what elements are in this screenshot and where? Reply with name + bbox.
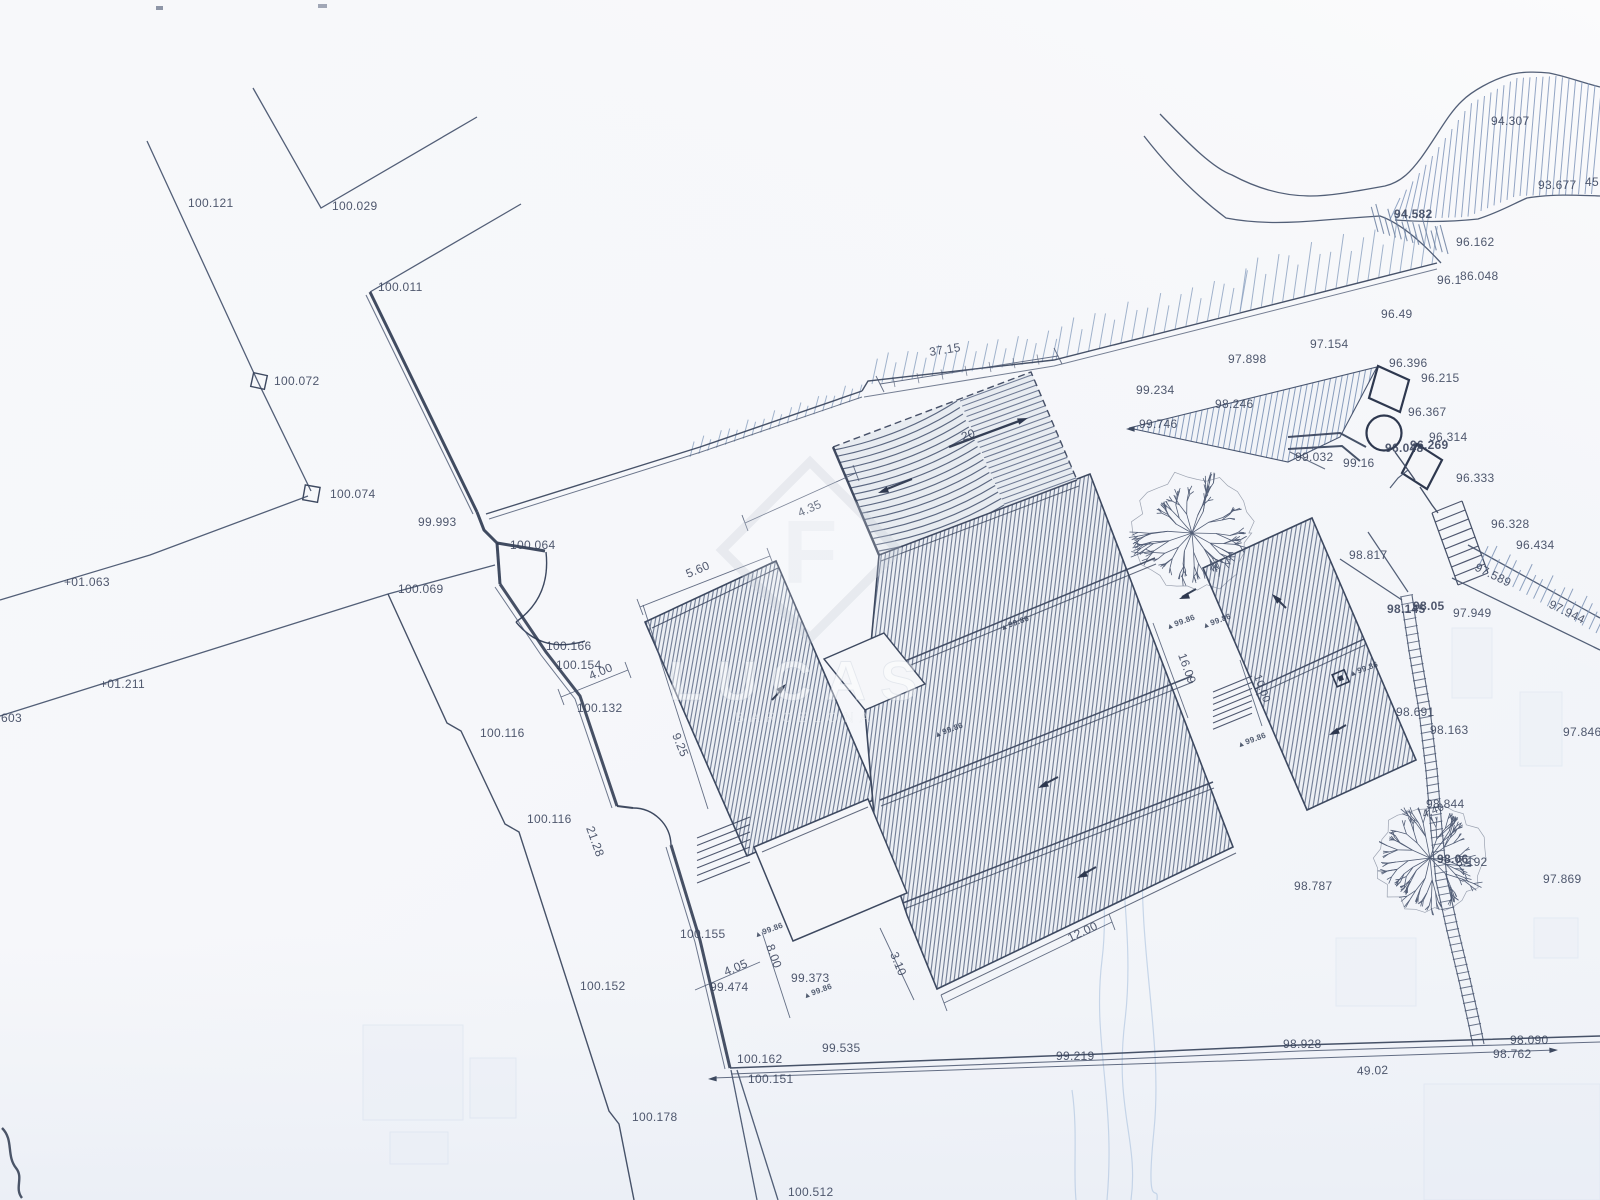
svg-text:96.215: 96.215 <box>1421 371 1460 385</box>
svg-text:97.898: 97.898 <box>1228 352 1267 366</box>
svg-text:100.116: 100.116 <box>527 812 572 826</box>
svg-text:98.762: 98.762 <box>1493 1047 1532 1061</box>
svg-text:98.090: 98.090 <box>1510 1033 1549 1047</box>
svg-text:100.072: 100.072 <box>274 374 320 388</box>
svg-text:98.163: 98.163 <box>1430 723 1469 737</box>
svg-text:100.132: 100.132 <box>577 701 623 715</box>
svg-text:+01.063: +01.063 <box>64 575 110 589</box>
svg-text:98.787: 98.787 <box>1294 879 1333 893</box>
svg-text:97.869: 97.869 <box>1543 872 1582 886</box>
svg-text:100.152: 100.152 <box>580 979 626 993</box>
svg-text:LUCAS: LUCAS <box>669 649 932 712</box>
svg-text:96.269: 96.269 <box>1410 438 1449 452</box>
svg-text:100.064: 100.064 <box>510 538 556 552</box>
svg-text:100.069: 100.069 <box>398 582 444 596</box>
svg-text:86.048: 86.048 <box>1460 269 1499 283</box>
svg-text:100.074: 100.074 <box>330 487 376 501</box>
svg-text:99.474: 99.474 <box>710 980 749 994</box>
svg-text:96.1: 96.1 <box>1437 273 1462 287</box>
svg-text:98.05: 98.05 <box>1413 599 1445 613</box>
svg-text:99.993: 99.993 <box>418 515 457 529</box>
svg-text:99.16: 99.16 <box>1343 456 1375 470</box>
svg-text:F: F <box>783 503 838 603</box>
svg-text:98.246: 98.246 <box>1215 397 1254 411</box>
svg-text:99.373: 99.373 <box>791 971 830 985</box>
svg-text:94.582: 94.582 <box>1394 207 1433 221</box>
svg-text:97.154: 97.154 <box>1310 337 1349 351</box>
svg-text:100.166: 100.166 <box>546 639 592 653</box>
svg-text:8.192: 8.192 <box>1456 855 1488 869</box>
svg-text:100.162: 100.162 <box>737 1052 783 1066</box>
svg-text:99.219: 99.219 <box>1056 1049 1095 1063</box>
svg-text:+01.211: +01.211 <box>100 677 145 691</box>
svg-text:603: 603 <box>1 711 22 725</box>
svg-text:100.512: 100.512 <box>788 1185 834 1199</box>
svg-text:96.367: 96.367 <box>1408 405 1447 419</box>
svg-text:98.691: 98.691 <box>1396 705 1435 719</box>
svg-text:BARCELONA: BARCELONA <box>735 709 875 725</box>
svg-text:96.396: 96.396 <box>1389 356 1428 370</box>
svg-text:100.011: 100.011 <box>378 280 423 294</box>
svg-text:49.02: 49.02 <box>1357 1063 1389 1078</box>
svg-text:96.434: 96.434 <box>1516 538 1555 552</box>
svg-text:45: 45 <box>1585 175 1599 189</box>
svg-text:96.333: 96.333 <box>1456 471 1495 485</box>
svg-text:96.162: 96.162 <box>1456 235 1495 249</box>
svg-text:93.677: 93.677 <box>1538 178 1577 192</box>
svg-text:99.032: 99.032 <box>1295 450 1334 464</box>
svg-text:94.307: 94.307 <box>1491 114 1530 128</box>
svg-text:100.151: 100.151 <box>748 1072 794 1086</box>
svg-text:96.328: 96.328 <box>1491 517 1530 531</box>
svg-text:100.155: 100.155 <box>680 927 726 941</box>
svg-text:99.535: 99.535 <box>822 1041 861 1055</box>
svg-text:98.817: 98.817 <box>1349 548 1388 562</box>
svg-text:100.121: 100.121 <box>188 196 234 210</box>
svg-text:100.116: 100.116 <box>480 726 525 740</box>
svg-text:100.029: 100.029 <box>332 199 378 213</box>
svg-text:97.949: 97.949 <box>1453 606 1492 620</box>
svg-text:97.846: 97.846 <box>1563 725 1600 739</box>
svg-text:99.234: 99.234 <box>1136 383 1175 397</box>
svg-text:99.746: 99.746 <box>1139 417 1178 431</box>
svg-text:98.928: 98.928 <box>1283 1037 1322 1051</box>
svg-text:96.49: 96.49 <box>1381 307 1413 321</box>
svg-text:100.178: 100.178 <box>632 1110 678 1124</box>
